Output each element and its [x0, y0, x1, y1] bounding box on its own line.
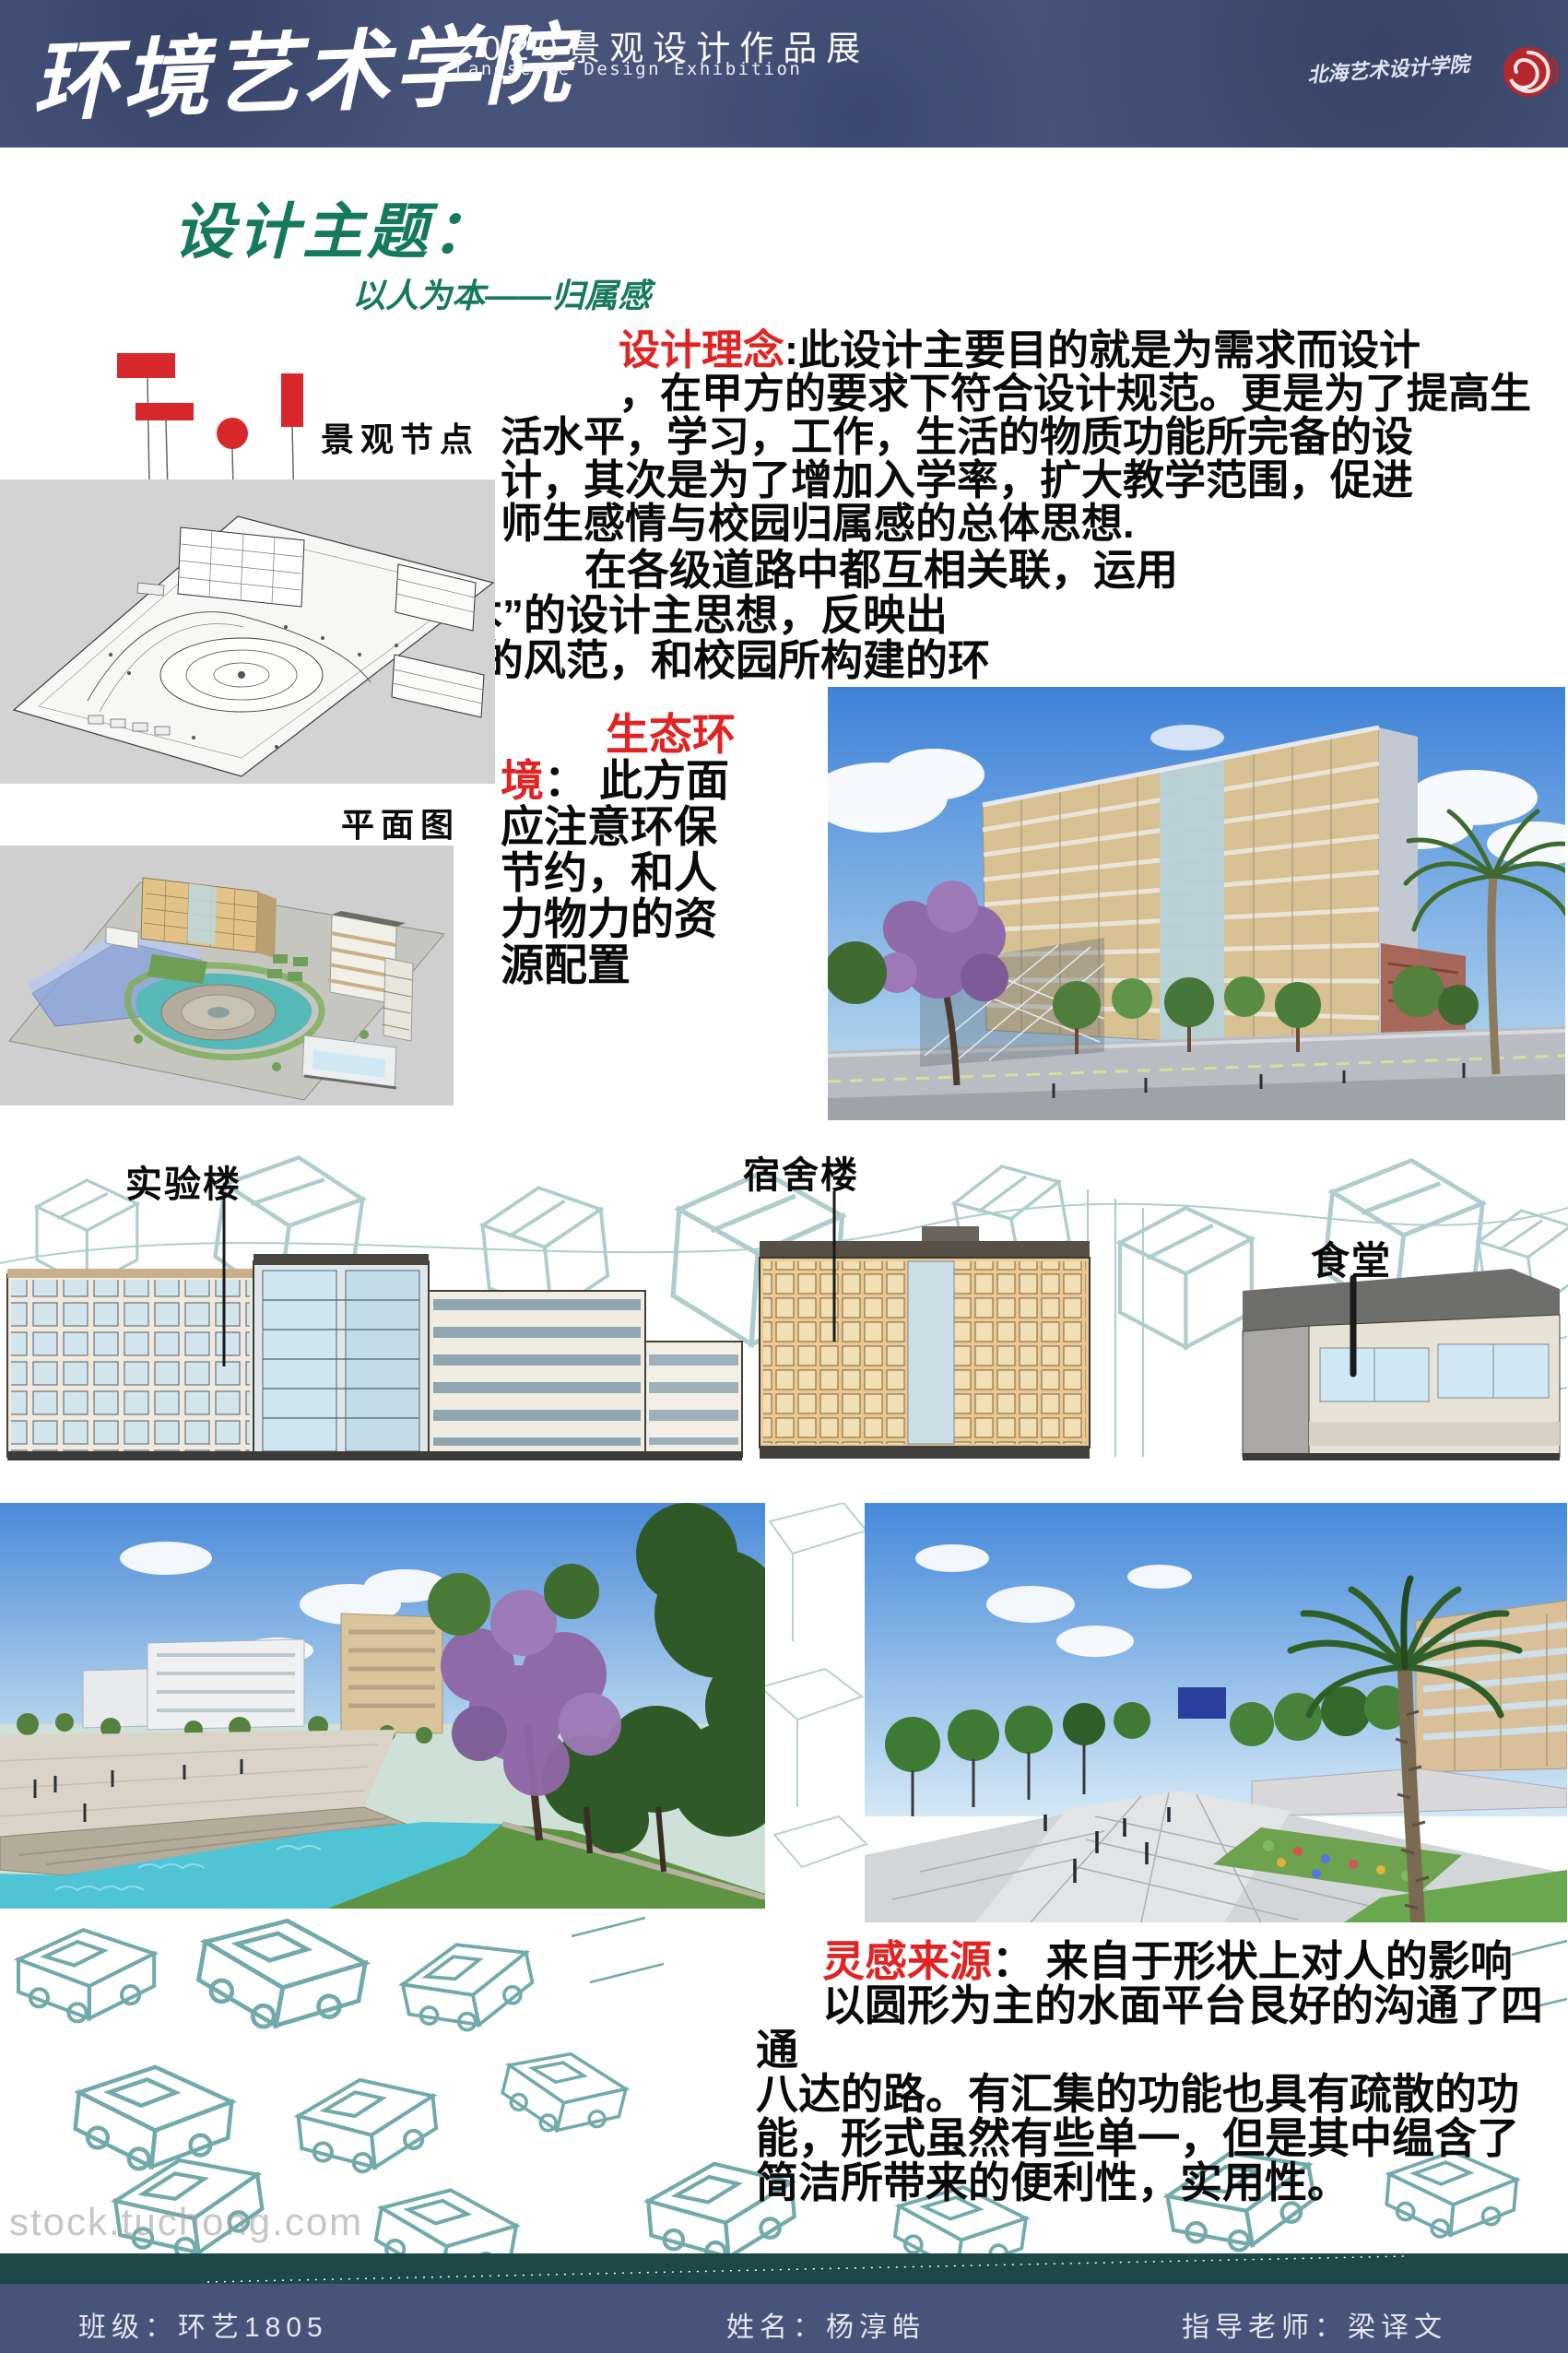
wireframe-gap-strip: [760, 1503, 871, 1927]
site-plan-figure: [0, 845, 454, 1106]
dotted-divider-line: [0, 2253, 1568, 2284]
design-concept-body: ，在甲方的要求下符合设计规范。更是为了提高生 活水平，学习，工作，生活的物质功能…: [501, 372, 1542, 545]
eco-body: 应注意环保 节约，和人 力物力的资 源配置: [501, 804, 759, 988]
design-concept-first-line: 此设计主要目的就是为需求而设计: [798, 326, 1421, 373]
lab-building-label: 实验楼: [125, 1154, 242, 1208]
design-concept-colon: :: [784, 326, 798, 373]
eco-colon: ：: [544, 756, 587, 805]
poster-page: 环境艺术学院 2020景观设计作品展 Landscape Design Exhi…: [0, 0, 1568, 2353]
eco-label-line2: 境: [501, 756, 544, 805]
waterfront-render: [0, 1503, 765, 1909]
plaza-walkway-render: [865, 1503, 1567, 1922]
teal-divider-band: [0, 2253, 1568, 2284]
red-node-marker: [117, 353, 175, 378]
canteen-label: 食堂: [1311, 1230, 1392, 1286]
theme-subtitle: 以人为本——归属感: [352, 269, 651, 317]
stock-watermark: stock.tuchong.com: [9, 2200, 363, 2244]
design-concept-label: 设计理念: [619, 326, 784, 373]
inspiration-label: 灵感来源: [822, 1937, 992, 1985]
eco-paragraph: 生态环 境： 此方面 应注意环保 节约，和人 力物力的资 源配置: [501, 712, 759, 988]
campus-building-render: [828, 687, 1565, 1120]
eco-label-line1: 生态环: [606, 712, 759, 758]
nodes-figure-label: 景观节点: [321, 413, 479, 461]
exhibition-subtitle: Landscape Design Exhibition: [455, 59, 802, 79]
inspiration-colon: ：: [992, 1937, 1034, 1985]
dorm-building-label: 宿舍楼: [743, 1145, 859, 1199]
page-title: 设计主题：: [173, 183, 496, 271]
inspiration-first-line: 来自于形状上对人的影响: [1034, 1937, 1513, 1985]
design-concept-paragraph: 设计理念:此设计主要目的就是为需求而设计 ，在甲方的要求下符合设计规范。更是为了…: [501, 328, 1542, 545]
plan-figure-label: 平面图: [341, 798, 460, 846]
footer-advisor-field: 指导老师：梁译文: [1182, 2304, 1447, 2345]
footer-name-field: 姓名：杨淳皓: [726, 2304, 925, 2345]
institute-logo-icon: [1493, 37, 1560, 107]
inspiration-body: 以圆形为主的水面平台艮好的沟通了四通 八达的路。有汇集的功能也具有疏散的功 能，…: [756, 1983, 1568, 2205]
eco-first-rest: 此方面: [587, 756, 729, 805]
footer-class-field: 班级：环艺1805: [78, 2304, 328, 2345]
inspiration-paragraph: 灵感来源： 来自于形状上对人的影响 以圆形为主的水面平台艮好的沟通了四通 八达的…: [756, 1939, 1568, 2205]
